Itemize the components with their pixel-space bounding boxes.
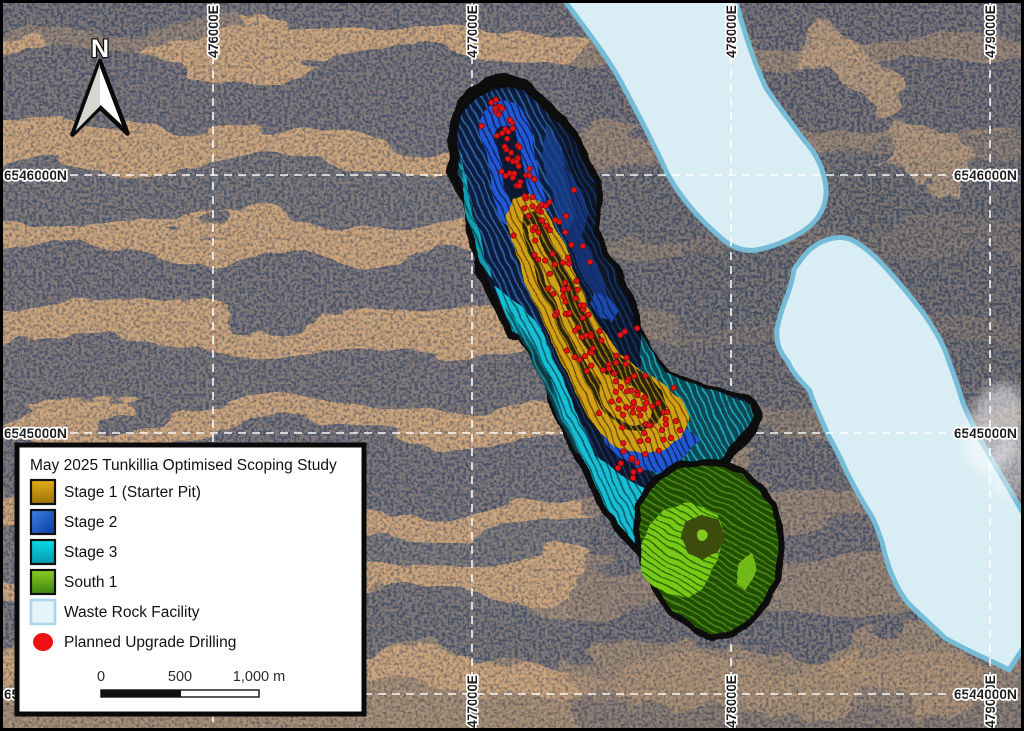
svg-text:6546000N: 6546000N: [4, 167, 67, 183]
svg-text:South 1: South 1: [64, 574, 117, 591]
svg-text:Stage 1 (Starter Pit): Stage 1 (Starter Pit): [64, 484, 201, 501]
svg-text:477000E: 477000E: [464, 675, 480, 728]
svg-text:6545000N: 6545000N: [4, 425, 67, 441]
svg-text:Stage 3: Stage 3: [64, 544, 117, 561]
svg-text:6546000N: 6546000N: [954, 167, 1017, 183]
svg-text:478000E: 478000E: [723, 675, 739, 728]
svg-text:0: 0: [97, 669, 105, 685]
svg-text:EL 590: EL 590: [487, 360, 534, 375]
svg-text:1,000 m: 1,000 m: [233, 669, 285, 685]
svg-text:479000E: 479000E: [982, 5, 998, 58]
svg-text:478000E: 478000E: [723, 5, 739, 58]
svg-text:Waste Rock Facility: Waste Rock Facility: [64, 604, 200, 621]
svg-text:6544000N: 6544000N: [954, 686, 1017, 702]
svg-text:500: 500: [168, 669, 192, 685]
svg-text:476000E: 476000E: [205, 5, 221, 58]
svg-text:Planned Upgrade Drilling: Planned Upgrade Drilling: [64, 634, 236, 651]
svg-text:May 2025 Tunkillia Optimised S: May 2025 Tunkillia Optimised Scoping Stu…: [30, 457, 337, 474]
svg-text:Stage 2: Stage 2: [64, 514, 117, 531]
svg-text:6545000N: 6545000N: [954, 425, 1017, 441]
svg-text:477000E: 477000E: [464, 5, 480, 58]
